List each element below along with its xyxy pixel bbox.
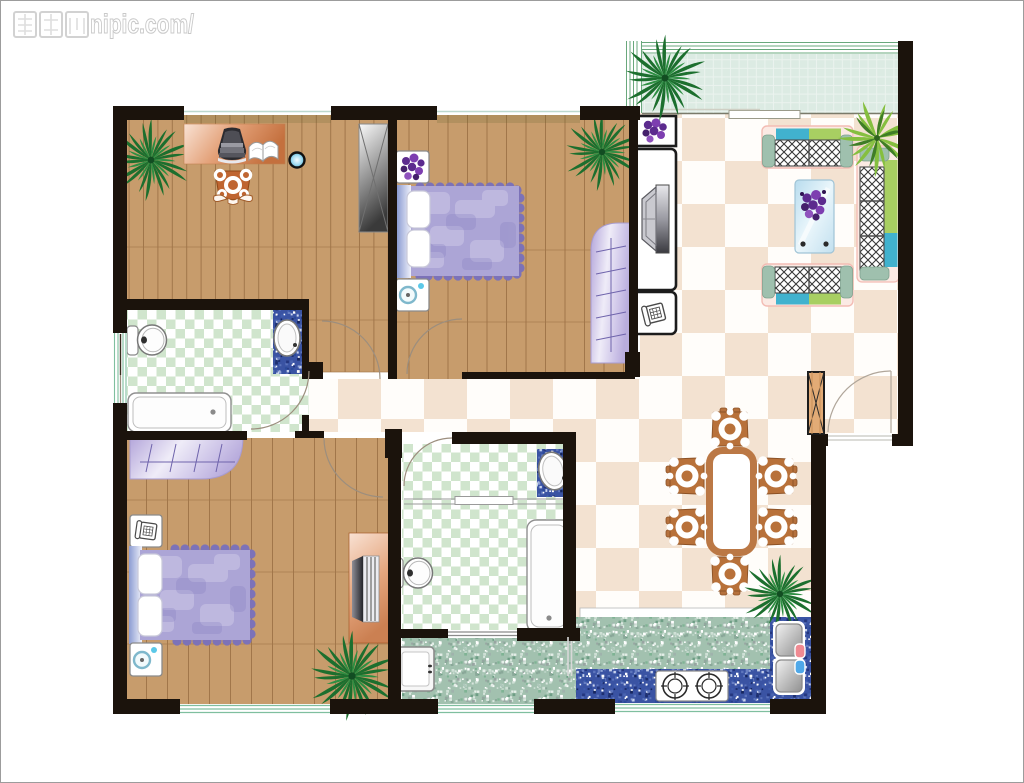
svg-text:nipic.com/: nipic.com/	[90, 9, 194, 39]
